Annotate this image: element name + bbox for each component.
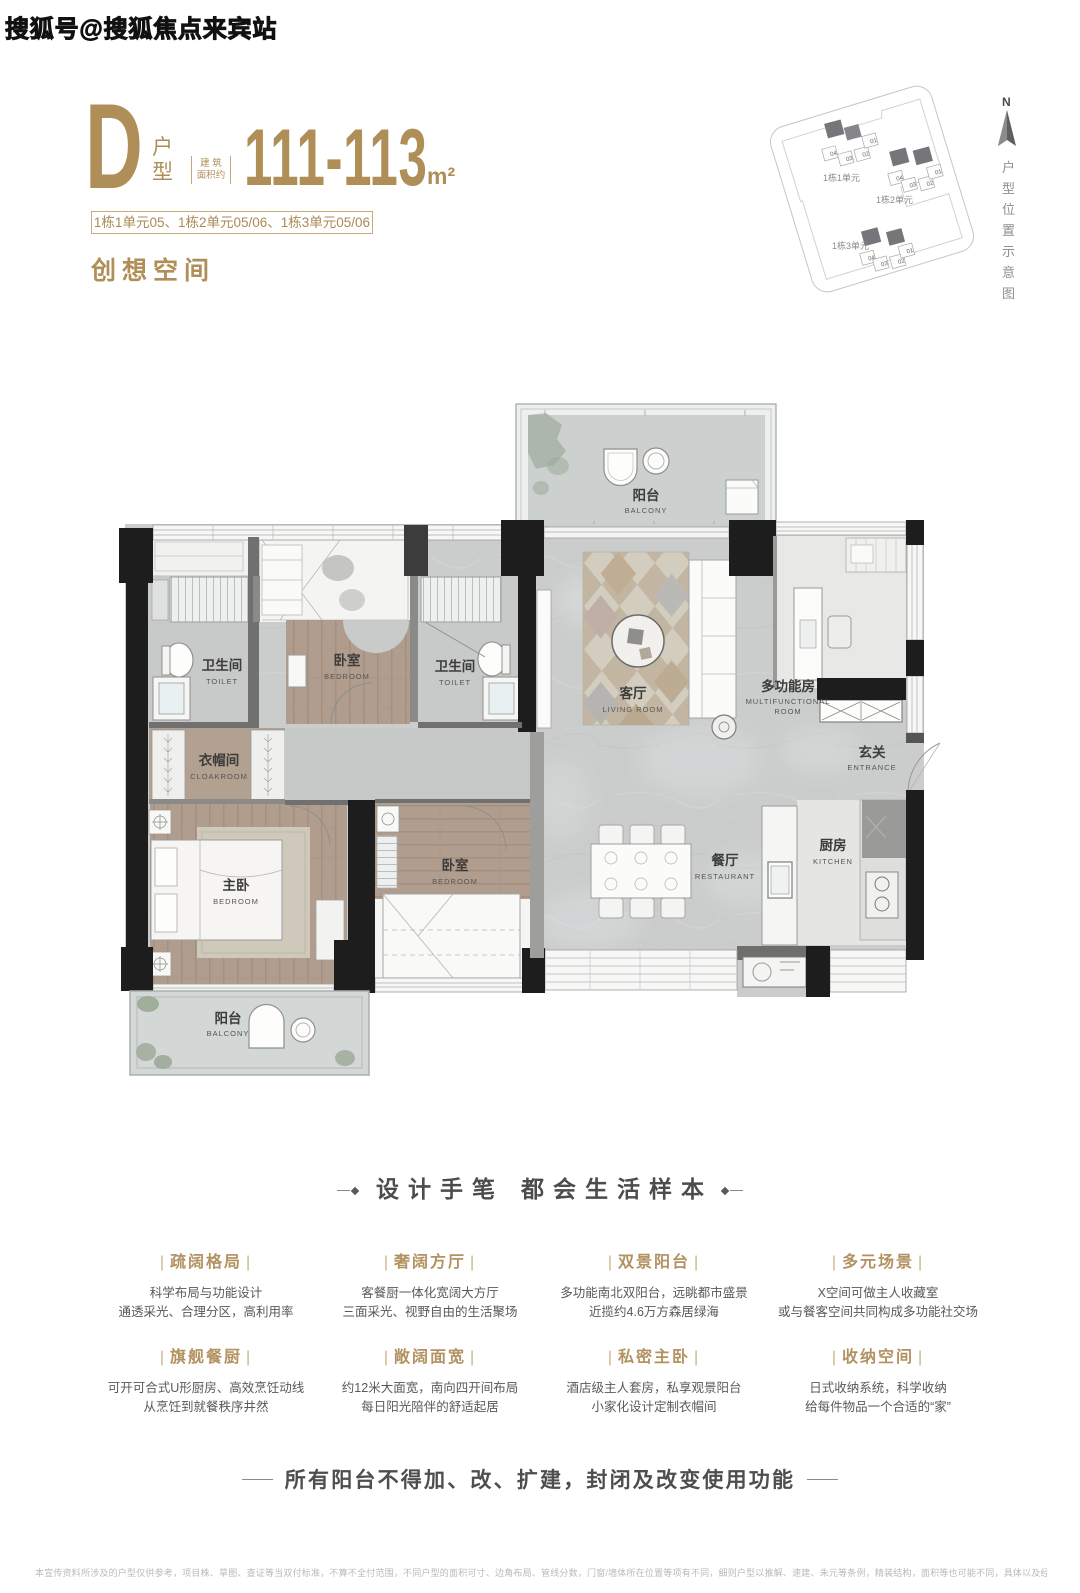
svg-text:KITCHEN: KITCHEN xyxy=(813,857,853,866)
svg-text:LIVING ROOM: LIVING ROOM xyxy=(602,705,663,714)
svg-text:1栋2单元: 1栋2单元 xyxy=(876,194,913,205)
svg-text:阳台: 阳台 xyxy=(215,1010,242,1026)
svg-text:BALCONY: BALCONY xyxy=(207,1029,250,1038)
svg-text:主卧: 主卧 xyxy=(223,877,250,893)
svg-text:玄关: 玄关 xyxy=(859,744,887,760)
svg-text:示: 示 xyxy=(1002,244,1015,259)
svg-text:多功能房: 多功能房 xyxy=(761,678,815,694)
svg-text:位: 位 xyxy=(1002,202,1015,217)
svg-text:MULTIFUNCTIONAL: MULTIFUNCTIONAL xyxy=(746,697,831,706)
svg-text:1栋1单元: 1栋1单元 xyxy=(823,172,860,183)
svg-text:厨房: 厨房 xyxy=(820,837,847,853)
svg-text:1栋3单元: 1栋3单元 xyxy=(832,240,869,251)
svg-text:BEDROOM: BEDROOM xyxy=(213,897,259,906)
svg-text:ENTRANCE: ENTRANCE xyxy=(847,763,896,772)
svg-text:TOILET: TOILET xyxy=(206,677,238,686)
svg-text:餐厅: 餐厅 xyxy=(711,852,740,868)
svg-text:RESTAURANT: RESTAURANT xyxy=(695,872,755,881)
svg-text:BEDROOM: BEDROOM xyxy=(324,672,370,681)
svg-text:BEDROOM: BEDROOM xyxy=(432,877,478,886)
svg-text:型: 型 xyxy=(1002,181,1015,196)
svg-text:阳台: 阳台 xyxy=(633,487,660,503)
svg-text:卫生间: 卫生间 xyxy=(435,658,476,674)
svg-text:置: 置 xyxy=(1002,223,1015,238)
svg-text:N: N xyxy=(1002,95,1011,109)
svg-text:卧室: 卧室 xyxy=(442,857,469,873)
svg-text:ROOM: ROOM xyxy=(774,707,801,716)
svg-text:户: 户 xyxy=(1002,160,1015,175)
svg-text:客厅: 客厅 xyxy=(619,685,648,701)
svg-text:TOILET: TOILET xyxy=(439,678,471,687)
svg-text:BALCONY: BALCONY xyxy=(625,506,668,515)
svg-text:CLOAKROOM: CLOAKROOM xyxy=(190,772,248,781)
svg-text:卫生间: 卫生间 xyxy=(202,657,243,673)
svg-text:图: 图 xyxy=(1002,286,1015,301)
svg-text:衣帽间: 衣帽间 xyxy=(199,752,240,768)
svg-text:意: 意 xyxy=(1002,265,1015,280)
svg-text:卧室: 卧室 xyxy=(334,652,361,668)
